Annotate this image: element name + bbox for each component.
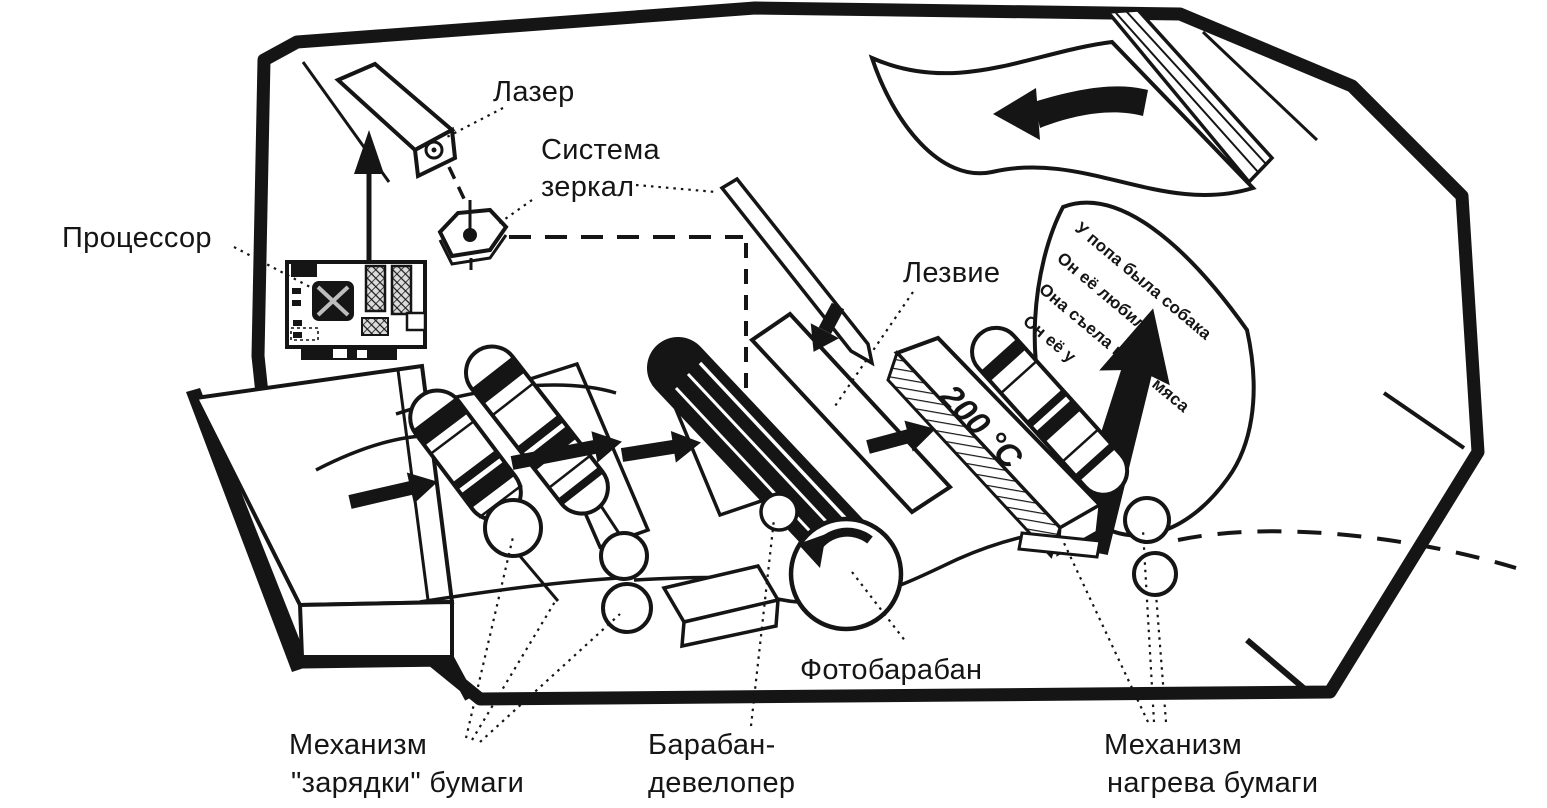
label-mirror-system-1: Система: [541, 134, 660, 166]
roller-end-cap: [485, 500, 541, 556]
edge-connector-gap: [357, 350, 367, 358]
small-chip: [362, 318, 388, 335]
processor-board: [287, 262, 425, 360]
board-tab: [407, 313, 425, 330]
heat-roller-end: [1134, 553, 1176, 595]
photo-drum: [791, 519, 901, 629]
board-connector: [291, 264, 317, 277]
pinch-roller: [603, 584, 651, 632]
label-heating-2: нагрева бумаги: [1107, 767, 1318, 799]
edge-connector-gap: [333, 349, 347, 358]
laser-printer-diagram: У попа была собака Он её любил Она съела…: [0, 0, 1547, 808]
developer-roller-end: [761, 494, 797, 530]
pin-mark: [292, 288, 301, 294]
label-charging-1: Механизм: [289, 729, 427, 761]
mirror-axis-dot: [463, 228, 477, 242]
memory-module: [392, 266, 411, 314]
tray-bottom-shadow: [302, 661, 470, 698]
pin-mark: [293, 332, 302, 338]
label-charging-2: "зарядки" бумаги: [291, 767, 524, 799]
pin-mark: [293, 320, 302, 326]
label-heating-1: Механизм: [1104, 729, 1242, 761]
label-processor: Процессор: [62, 222, 212, 254]
pin-mark: [292, 300, 301, 306]
label-blade: Лезвие: [903, 257, 1000, 289]
edge-connector: [301, 347, 397, 360]
pinch-roller: [601, 533, 647, 579]
heat-roller-end: [1125, 498, 1169, 542]
label-photo-drum: Фотобарабан: [800, 654, 982, 686]
memory-module: [366, 266, 385, 311]
diagram-canvas: У попа была собака Он её любил Она съела…: [0, 0, 1547, 808]
tray-front-face: [300, 602, 452, 657]
laser-lens-dot: [432, 148, 437, 153]
label-developer-1: Барабан-: [648, 729, 776, 761]
label-mirror-system-2: зеркал: [541, 171, 634, 203]
label-developer-2: девелопер: [648, 767, 795, 799]
label-laser: Лазер: [493, 76, 575, 108]
